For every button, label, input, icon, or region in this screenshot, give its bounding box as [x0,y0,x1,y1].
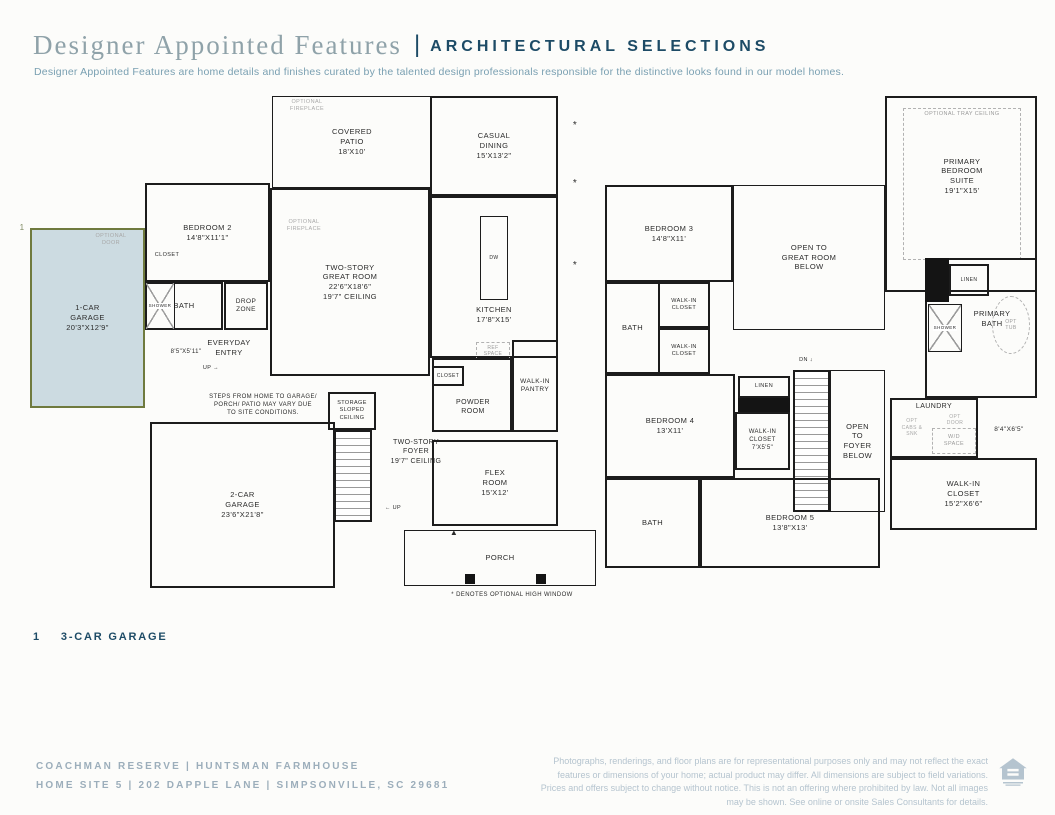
laundry-opt-cabs-label: OPT CABS & SNK [902,418,923,438]
high-window-asterisk-2-label: * [573,177,577,190]
callout-marker-1-label: 1 [20,223,25,233]
wic-bedroom4: WALK-IN CLOSET [658,328,710,374]
powder-label-label: POWDER ROOM [456,398,490,416]
kitchen-island-label: DW [489,255,498,262]
bedroom-3-label: BEDROOM 3 14'8"X11' [645,224,694,244]
flex-room: FLEX ROOM 15'X12' [432,440,558,526]
bath-3: BATH [605,478,700,568]
page-header: Designer Appointed Features|ARCHITECTURA… [33,30,769,61]
flex-room-label: FLEX ROOM 15'X12' [481,468,508,497]
linen-primary: LINEN [949,264,989,296]
drop-zone-label: DROP ZONE [236,298,256,315]
primary-suite-label-label: PRIMARY BEDROOM SUITE 19'1"X15' [941,157,983,196]
optional-fireplace-patio: OPTIONAL FIREPLACE [276,98,338,114]
entry-up-label: UP → [203,365,219,372]
callout-number: 1 [33,631,41,643]
drop-zone: DROP ZONE [224,282,268,330]
high-window-asterisk-1: * [570,120,580,130]
open-great-room-label: OPEN TO GREAT ROOM BELOW [782,243,837,272]
hall-dim-label: 8'4"X6'5" [994,426,1024,434]
garage-2: 2-CAR GARAGE 23'6"X21'8" [150,422,335,588]
stairs2-dn: DN ↓ [791,356,821,366]
open-great-room: OPEN TO GREAT ROOM BELOW [733,185,885,330]
wic-bedroom3: WALK-IN CLOSET [658,282,710,328]
shower-1: SHOWER [145,282,175,330]
laundry-label-label: LAUNDRY [916,402,952,411]
porch-post-2 [536,574,546,584]
kitchen-island: DW [480,216,508,300]
foyer-up: ← UP [376,504,410,514]
address-line: HOME SITE 5 | 202 DAPPLE LANE | SIMPSONV… [36,776,449,795]
tray-ceiling-label: OPTIONAL TRAY CEILING [924,111,999,118]
linen-primary-fill [925,258,949,302]
entry-dim-label: 8'5"X5'11" [171,349,202,357]
wic-primary-label: WALK-IN CLOSET 15'2"X6'6" [944,479,982,508]
laundry-label: LAUNDRY [898,401,970,413]
opt-tub-label: OPT TUB [1005,319,1016,332]
shower-primary: SHOWER [928,304,962,352]
floorplan-second-floor: OPTIONAL TRAY CEILINGPRIMARY BEDROOM SUI… [600,92,1042,592]
kitchen-label: KITCHEN 17'8"X15' [442,304,546,326]
closet-powder: CLOSET [432,366,464,386]
laundry-opt-cabs: OPT CABS & SNK [892,414,932,442]
ref-space-label: REF SPACE [484,345,503,358]
bedroom-3: BEDROOM 3 14'8"X11' [605,185,733,282]
covered-patio-label: COVERED PATIO 18'X10' [332,127,372,156]
open-foyer-label: OPEN TO FOYER BELOW [843,422,872,461]
wic-bedroom3-label: WALK-IN CLOSET [671,298,697,312]
bedroom-5: BEDROOM 5 13'8"X13' [700,478,880,568]
entry-dim: 8'5"X5'11" [156,348,216,358]
high-window-asterisk-2: * [570,178,580,188]
high-window-asterisk-3-label: * [573,259,577,272]
wic-7x55-label: WALK-IN CLOSET 7'X5'5" [749,429,777,452]
linen-hall-label: LINEN [755,383,773,390]
primary-suite-label: PRIMARY BEDROOM SUITE 19'1"X15' [917,150,1007,202]
bedroom2-closet-label: CLOSET [155,252,179,259]
porch-label: PORCH [485,553,514,563]
steps-note: STEPS FROM HOME TO GARAGE/ PORCH/ PATIO … [186,390,340,422]
bath-1-label: BATH [173,301,194,311]
footer-left: COACHMAN RESERVE | HUNTSMAN FARMHOUSE HO… [36,757,449,795]
garage1-optional-door: OPTIONAL DOOR [80,232,142,248]
foyer-up-label: ← UP [385,505,401,512]
stairs2-dn-label: DN ↓ [799,357,813,364]
porch-post-1 [465,574,475,584]
title-divider: | [414,31,420,58]
wic-primary: WALK-IN CLOSET 15'2"X6'6" [890,458,1037,530]
disclaimer-text: Photographs, renderings, and floor plans… [530,755,988,809]
optional-fireplace-patio-label: OPTIONAL FIREPLACE [290,99,324,113]
kitchen-label-label: KITCHEN 17'8"X15' [476,305,512,325]
porch: PORCH [404,530,596,586]
garage1-optional-door-label: OPTIONAL DOOR [95,233,126,247]
laundry-opt-door: OPT DOOR [934,414,976,426]
casual-dining: CASUAL DINING 15'X13'2" [430,96,558,196]
optional-fireplace-greatroom: OPTIONAL FIREPLACE [274,218,334,234]
callout-marker-1: 1 [16,222,28,234]
high-window-footnote-label: * DENOTES OPTIONAL HIGH WINDOW [451,592,572,600]
pantry: WALK-IN PANTRY [512,340,558,432]
high-window-asterisk-3: * [570,260,580,270]
optional-fireplace-greatroom-label: OPTIONAL FIREPLACE [287,219,321,233]
great-room-label: TWO-STORY GREAT ROOM 22'6"X18'6" 19'7" C… [323,263,378,302]
garage-1: 1-CAR GARAGE 20'3"X12'9" [30,228,145,408]
equal-housing-icon [998,757,1028,787]
bedroom-4: BEDROOM 4 13'X11' [605,374,735,478]
option-callout: 1 3-CAR GARAGE [33,631,167,643]
bedroom-2-label: BEDROOM 2 14'8"X11'1" [183,223,232,243]
garage-1-label: 1-CAR GARAGE 20'3"X12'9" [66,303,109,332]
laundry-opt-door-label: OPT DOOR [947,414,964,427]
closet-powder-label: CLOSET [437,373,459,380]
bedroom-4-label: BEDROOM 4 13'X11' [646,416,695,436]
storage: STORAGE SLOPED CEILING [328,392,376,430]
stairs-1 [334,430,372,522]
bedroom-5-label: BEDROOM 5 13'8"X13' [766,513,815,533]
callout-label: 3-CAR GARAGE [61,631,168,643]
floorplan-first-floor: COVERED PATIO 18'X10'OPTIONAL FIREPLACEC… [28,92,598,604]
storage-label: STORAGE SLOPED CEILING [337,400,367,421]
shower-primary-label: SHOWER [933,325,958,331]
page-title-caps: ARCHITECTURAL SELECTIONS [430,38,769,55]
shower-1-label: SHOWER [148,303,173,309]
community-line: COACHMAN RESERVE | HUNTSMAN FARMHOUSE [36,757,449,776]
bath-2-label: BATH [622,323,643,333]
page-title: Designer Appointed Features [33,30,402,60]
bath-3-label: BATH [642,518,663,528]
wd-space-label: W/D SPACE [944,434,964,448]
bedroom-2: BEDROOM 2 14'8"X11'1" [145,183,270,282]
page: { "colors": { "accent_navy": "#1d4b66", … [0,0,1055,815]
steps-note-label: STEPS FROM HOME TO GARAGE/ PORCH/ PATIO … [209,394,317,417]
linen-wall-fill [738,398,790,412]
linen-hall: LINEN [738,376,790,398]
wic-7x55: WALK-IN CLOSET 7'X5'5" [735,412,790,470]
pantry-label: WALK-IN PANTRY [520,378,550,395]
wd-space: W/D SPACE [932,428,976,454]
garage-2-label: 2-CAR GARAGE 23'6"X21'8" [221,490,264,519]
great-room: TWO-STORY GREAT ROOM 22'6"X18'6" 19'7" C… [270,188,430,376]
high-window-asterisk-1-label: * [573,119,577,132]
bedroom2-closet: CLOSET [146,250,188,262]
powder-label: POWDER ROOM [442,396,504,418]
high-window-footnote: * DENOTES OPTIONAL HIGH WINDOW [426,590,598,602]
linen-primary-label: LINEN [961,277,978,284]
wic-bedroom4-label: WALK-IN CLOSET [671,344,697,358]
casual-dining-label: CASUAL DINING 15'X13'2" [477,131,512,160]
entry-up: UP → [194,364,228,374]
hall-dim: 8'4"X6'5" [980,424,1038,436]
bath-2: BATH [605,282,660,374]
page-subtitle: Designer Appointed Features are home det… [34,66,844,78]
opt-tub: OPT TUB [992,296,1030,354]
